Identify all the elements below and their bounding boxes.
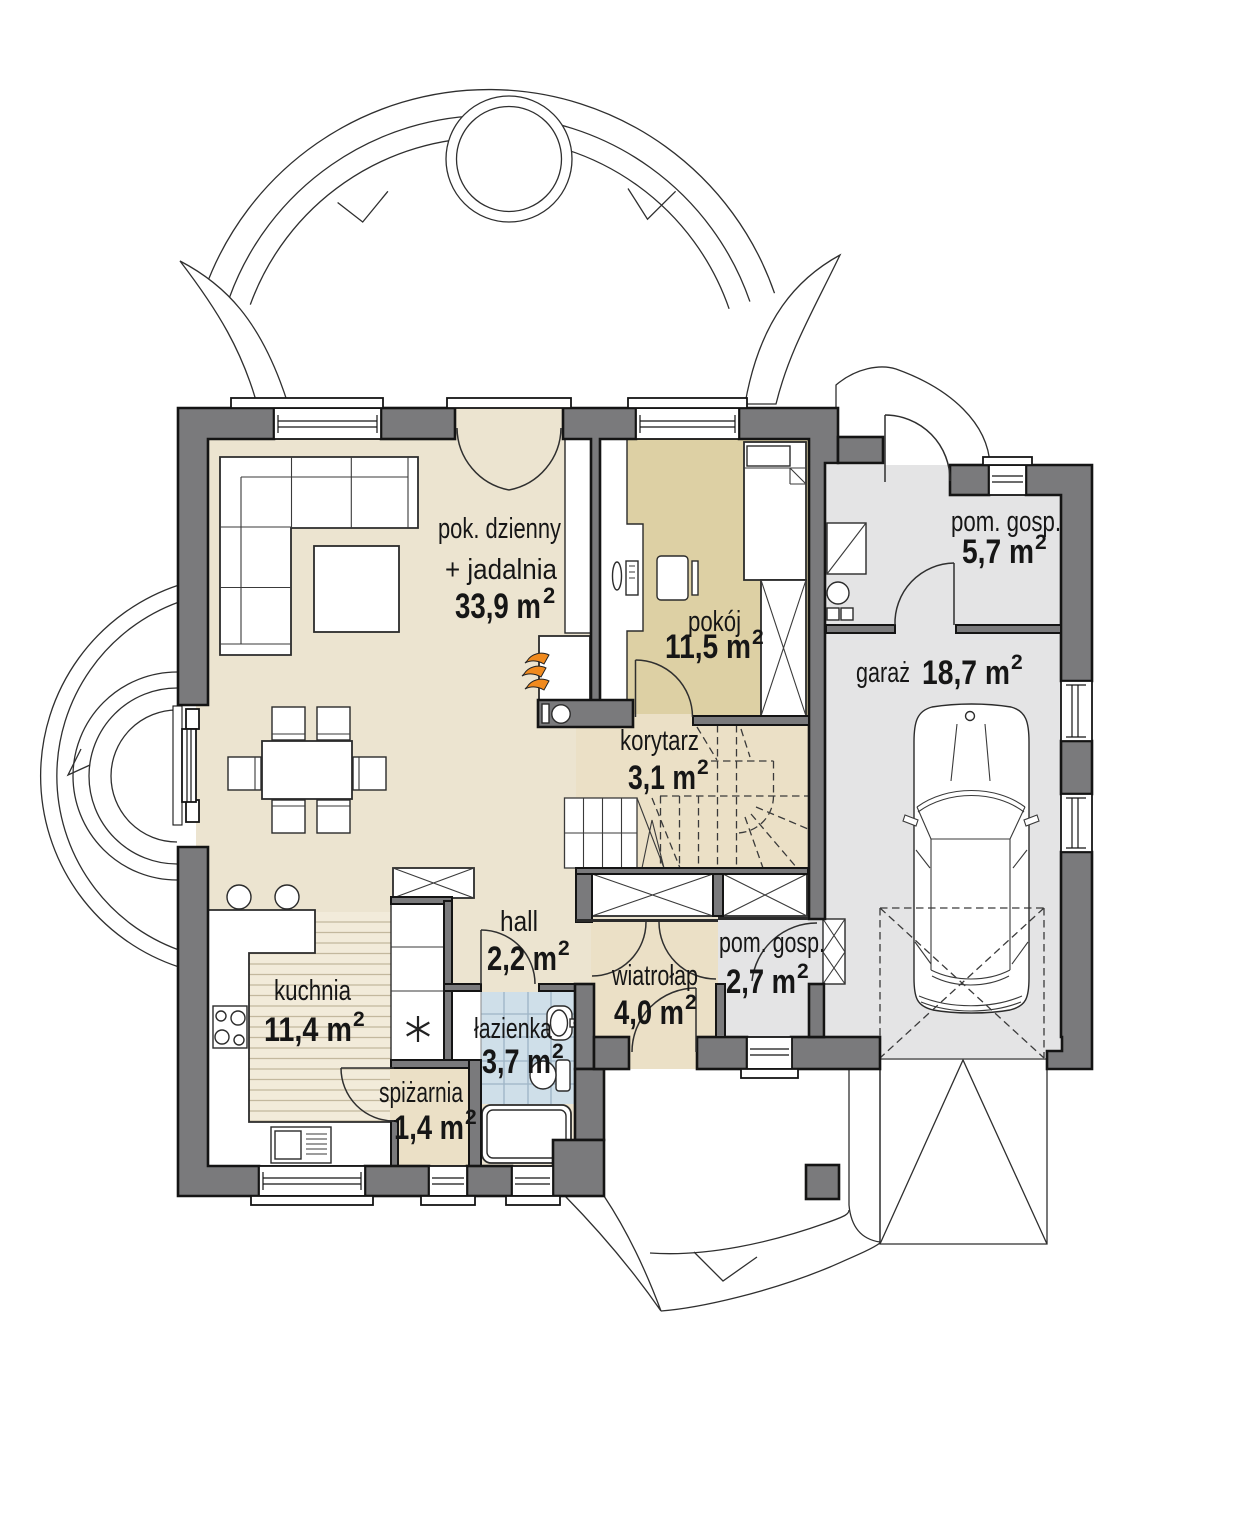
svg-text:korytarz: korytarz [620, 725, 699, 757]
svg-text:łazienka: łazienka [474, 1013, 553, 1045]
svg-text:2: 2 [1035, 531, 1047, 554]
svg-text:18,7 m: 18,7 m [922, 654, 1010, 692]
svg-text:2: 2 [552, 1040, 564, 1063]
svg-text:33,9 m: 33,9 m [455, 587, 541, 626]
svg-text:2: 2 [685, 991, 697, 1014]
svg-text:spiżarnia: spiżarnia [379, 1077, 464, 1109]
svg-text:2: 2 [353, 1008, 365, 1031]
svg-text:3,7 m: 3,7 m [482, 1043, 551, 1081]
svg-text:4,0 m: 4,0 m [614, 994, 684, 1032]
svg-text:2: 2 [465, 1106, 477, 1129]
svg-text:pom. gosp.: pom. gosp. [719, 927, 825, 959]
svg-text:2,7 m: 2,7 m [726, 963, 796, 1001]
svg-text:wiatrołap: wiatrołap [611, 960, 698, 992]
svg-text:garaż: garaż [856, 657, 910, 689]
svg-text:2: 2 [1011, 651, 1023, 674]
svg-text:2: 2 [797, 960, 809, 983]
svg-text:11,4 m: 11,4 m [264, 1011, 352, 1049]
svg-text:11,5 m: 11,5 m [665, 628, 751, 666]
svg-text:3,1 m: 3,1 m [628, 759, 696, 797]
svg-text:5,7 m: 5,7 m [962, 533, 1034, 571]
svg-text:pok. dzienny: pok. dzienny [438, 513, 561, 545]
svg-text:1,4 m: 1,4 m [394, 1109, 464, 1147]
svg-text:kuchnia: kuchnia [274, 975, 352, 1007]
svg-text:2,2 m: 2,2 m [487, 940, 557, 978]
svg-text:+ jadalnia: + jadalnia [445, 554, 558, 586]
svg-text:2: 2 [543, 583, 555, 608]
svg-text:hall: hall [500, 906, 538, 938]
svg-text:2: 2 [752, 626, 764, 649]
svg-text:2: 2 [697, 756, 709, 779]
svg-text:2: 2 [558, 937, 570, 960]
